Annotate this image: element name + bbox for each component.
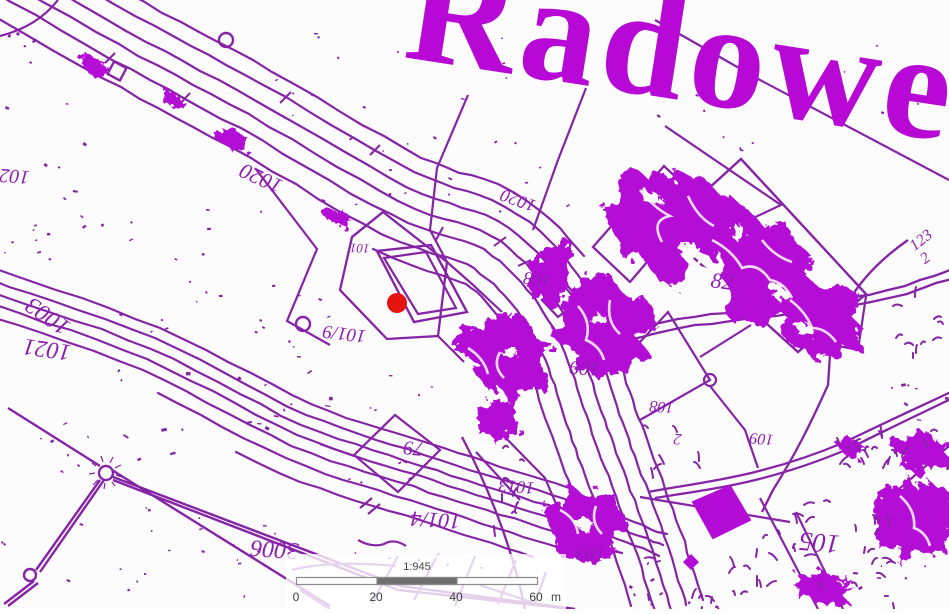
svg-text:108: 108 (649, 397, 674, 416)
svg-text:0: 0 (293, 590, 300, 604)
svg-text:101: 101 (350, 240, 370, 256)
svg-text:m: m (551, 590, 561, 604)
svg-text:1:945: 1:945 (403, 561, 431, 573)
svg-text:40: 40 (449, 590, 463, 604)
svg-text:109: 109 (749, 429, 774, 448)
svg-text:103: 103 (575, 542, 607, 567)
svg-text:79: 79 (403, 436, 425, 460)
svg-text:1013: 1013 (498, 475, 536, 498)
svg-text:60: 60 (529, 590, 543, 604)
svg-text:82: 82 (709, 267, 734, 295)
svg-text:2: 2 (673, 430, 682, 448)
svg-text:20: 20 (369, 590, 383, 604)
svg-text:101/4: 101/4 (410, 506, 462, 534)
svg-text:109: 109 (569, 356, 601, 381)
svg-text:102: 102 (0, 164, 30, 189)
svg-text:105: 105 (798, 526, 841, 559)
